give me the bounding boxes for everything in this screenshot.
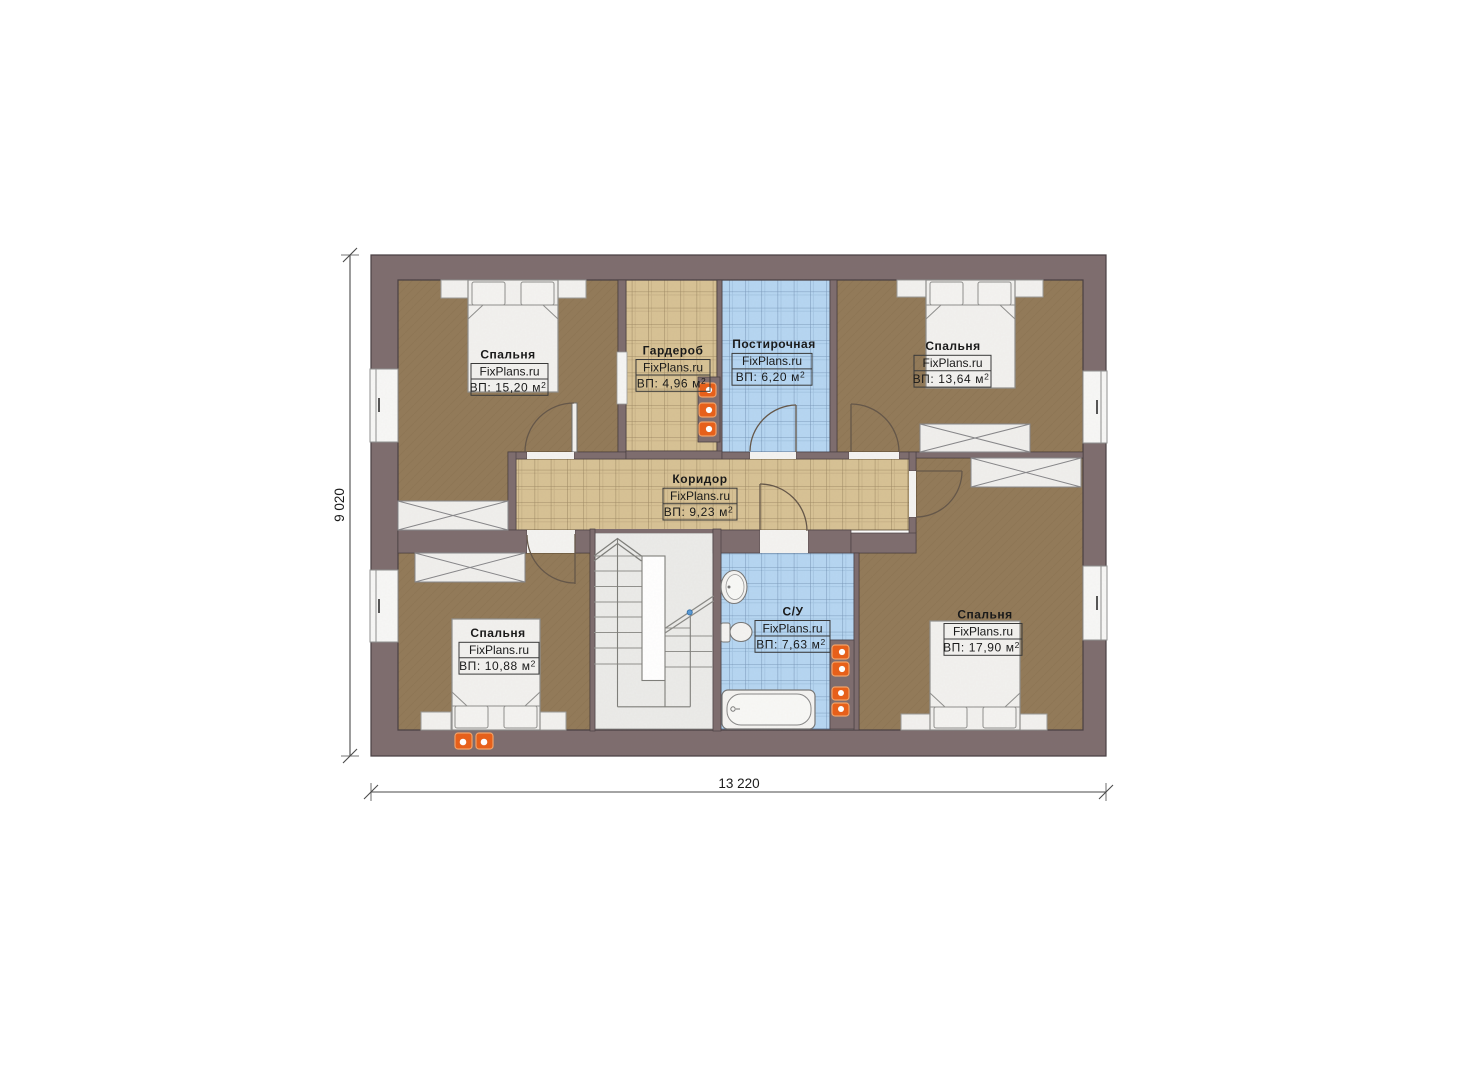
svg-text:Спальня: Спальня	[925, 339, 980, 353]
svg-text:Гардероб: Гардероб	[643, 343, 704, 357]
svg-text:ВП: 13,64 м2: ВП: 13,64 м2	[913, 372, 990, 387]
svg-text:ВП: 6,20 м2: ВП: 6,20 м2	[736, 370, 806, 385]
svg-text:FixPlans.ru: FixPlans.ru	[742, 354, 802, 368]
svg-text:Спальня: Спальня	[470, 626, 525, 640]
svg-text:ВП: 17,90 м2: ВП: 17,90 м2	[943, 640, 1020, 655]
svg-text:FixPlans.ru: FixPlans.ru	[953, 624, 1013, 638]
svg-text:Спальня: Спальня	[480, 347, 535, 361]
svg-text:ВП: 10,88 м2: ВП: 10,88 м2	[459, 659, 536, 674]
svg-text:Коридор: Коридор	[672, 472, 727, 486]
svg-text:FixPlans.ru: FixPlans.ru	[469, 643, 529, 657]
svg-text:FixPlans.ru: FixPlans.ru	[643, 360, 703, 374]
svg-text:FixPlans.ru: FixPlans.ru	[762, 621, 822, 635]
svg-text:ВП: 15,20 м2: ВП: 15,20 м2	[470, 380, 547, 395]
svg-text:FixPlans.ru: FixPlans.ru	[479, 364, 539, 378]
svg-text:Спальня: Спальня	[957, 607, 1012, 621]
svg-text:13 220: 13 220	[718, 776, 759, 791]
svg-text:9 020: 9 020	[332, 488, 347, 522]
svg-text:ВП: 9,23 м2: ВП: 9,23 м2	[664, 505, 734, 520]
svg-text:FixPlans.ru: FixPlans.ru	[922, 356, 982, 370]
svg-text:Постирочная: Постирочная	[732, 337, 815, 351]
svg-text:ВП: 7,63 м2: ВП: 7,63 м2	[756, 637, 826, 652]
svg-text:С/У: С/У	[783, 604, 804, 618]
svg-text:FixPlans.ru: FixPlans.ru	[670, 489, 730, 503]
svg-text:ВП: 4,96 м2: ВП: 4,96 м2	[637, 376, 707, 391]
